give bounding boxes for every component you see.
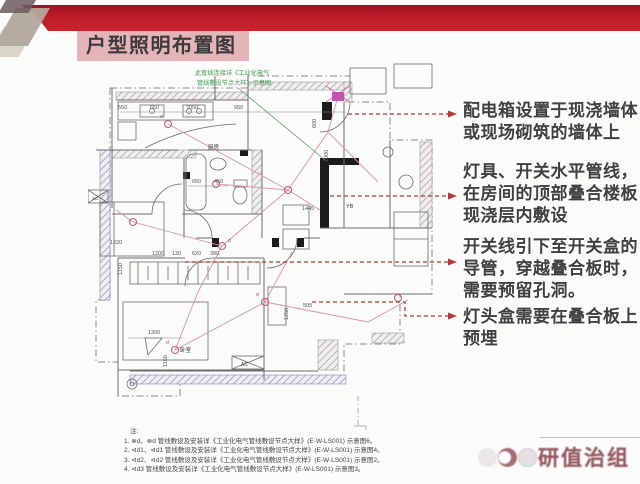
note-item-3: 3. ⊲d2、⊲d2 管线敷设及安装详《工业化电气管线敷设节点大样》(E-W-L… xyxy=(124,456,384,466)
room-labels: 厨房 卧室 YB AC AC xyxy=(92,143,354,368)
dim-650b: 650 xyxy=(192,179,201,185)
label-ac: AC xyxy=(241,362,248,368)
dim-1300: 1300 xyxy=(148,330,160,336)
annotation-switch-conduit: 开关线引下至开关盒的 导管，穿越叠合板时， 需要预留孔洞。 xyxy=(463,236,638,302)
dim-600: 600 xyxy=(312,119,318,128)
green-note-line2: 管线敷设节点大样》示意图 xyxy=(197,79,271,87)
annotation-line: 预埋 xyxy=(463,328,638,350)
dim-1150: 1150 xyxy=(118,263,124,275)
annotation-line: 在房间的顶部叠合楼板 xyxy=(463,183,638,205)
watermark: 研值治组 xyxy=(478,443,630,471)
dim-620: 620 xyxy=(192,251,201,257)
dim-650: 650 xyxy=(150,105,159,111)
annotation-line: 现浇层内敷设 xyxy=(463,205,638,227)
watermark-divider-line xyxy=(540,437,640,438)
dim-1445: 1445 xyxy=(302,206,314,212)
annotation-line: 灯具、开关水平管线， xyxy=(463,161,638,183)
dim-450: 450 xyxy=(214,179,223,185)
lamp-letter: d xyxy=(228,238,231,244)
leader-arrow-1 xyxy=(448,111,457,118)
watermark-logo-icon xyxy=(518,448,537,467)
dim-550: 550 xyxy=(118,105,127,111)
note-item-2: 2. ⊲d1、⊲d1 管线敷设及安装详《工业化电气管线敷设节点大样》(E-W-L… xyxy=(124,446,384,456)
dim-1200: 1200 xyxy=(152,251,164,257)
room-label-kitchen: 厨房 xyxy=(208,143,220,151)
annotation-line: 或现场砌筑的墙体上 xyxy=(463,122,638,144)
annotation-line: 导管，穿越叠合板时， xyxy=(463,258,638,280)
dim-1250: 1250 xyxy=(284,308,290,320)
dim-505: 505 xyxy=(303,303,312,309)
dim-1320: 1320 xyxy=(110,240,122,246)
annotation-line: 灯头盒需要在叠合板上 xyxy=(463,306,638,328)
notes-heading: 注: xyxy=(130,427,384,437)
annotation-line: 需要预留孔洞。 xyxy=(463,280,638,302)
page-title: 户型照明布置图 xyxy=(77,31,249,61)
leader-arrow-4 xyxy=(448,313,457,320)
dimension-texts: 550 650 7050 950 650 450 1000 600 1445 1… xyxy=(110,105,330,367)
slide-page: 户型照明布置图 xyxy=(0,0,640,484)
drawing-notes: 注: 1. ⊗d、⊗d 管线敷设及安装详《工业化电气管线敷设节点大样》(E-W-… xyxy=(124,427,384,475)
annotation-distribution-box: 配电箱设置于现浇墙体 或现场砌筑的墙体上 xyxy=(463,100,638,144)
leader-arrow-3 xyxy=(448,259,457,266)
watermark-text: 研值治组 xyxy=(538,442,630,472)
green-note-line1: 此管线连接详《工业化电气 xyxy=(195,69,269,77)
label-yb: YB xyxy=(346,204,354,210)
watermark-logo-icon xyxy=(498,448,517,467)
annotation-line: 配电箱设置于现浇墙体 xyxy=(463,100,638,122)
dim-950: 950 xyxy=(234,105,243,111)
hatched-walls xyxy=(100,82,432,384)
label-ac2: AC xyxy=(92,196,99,201)
dim-1000: 1000 xyxy=(324,150,330,162)
note-item-1: 1. ⊗d、⊗d 管线敷设及安装详《工业化电气管线敷设节点大样》(E-W-LS0… xyxy=(124,437,384,447)
room-label-bedroom: 卧室 xyxy=(180,346,192,354)
floorplan-drawing: d d d d 此管线连接详《工业化电气 管线敷设节点大样》示意图 550 65… xyxy=(88,62,444,430)
watermark-logo-icon xyxy=(478,448,497,467)
dim-7050: 7050 xyxy=(186,105,198,111)
annotation-line: 开关线引下至开关盒的 xyxy=(463,236,638,258)
lamp-letter: d xyxy=(160,114,163,120)
annotation-lamp-box: 灯头盒需要在叠合板上 预埋 xyxy=(463,306,638,350)
corner-decoration-tan xyxy=(0,8,50,46)
dim-380: 380 xyxy=(210,251,219,257)
dim-1150b: 1150 xyxy=(163,355,169,367)
note-item-4: 4. ⊲d3 管线敷设及安装详《工业化电气管线敷设节点大样》(E-W-LS001… xyxy=(124,465,384,475)
lamp-letter: d xyxy=(256,292,259,298)
annotation-horizontal-conduit: 灯具、开关水平管线， 在房间的顶部叠合楼板 现浇层内敷设 xyxy=(463,161,638,227)
dim-130: 130 xyxy=(172,251,181,257)
lamp-letter: d xyxy=(166,340,169,346)
leader-arrow-2 xyxy=(448,193,457,200)
banner-red-bar xyxy=(28,5,640,31)
distribution-box xyxy=(332,92,344,101)
